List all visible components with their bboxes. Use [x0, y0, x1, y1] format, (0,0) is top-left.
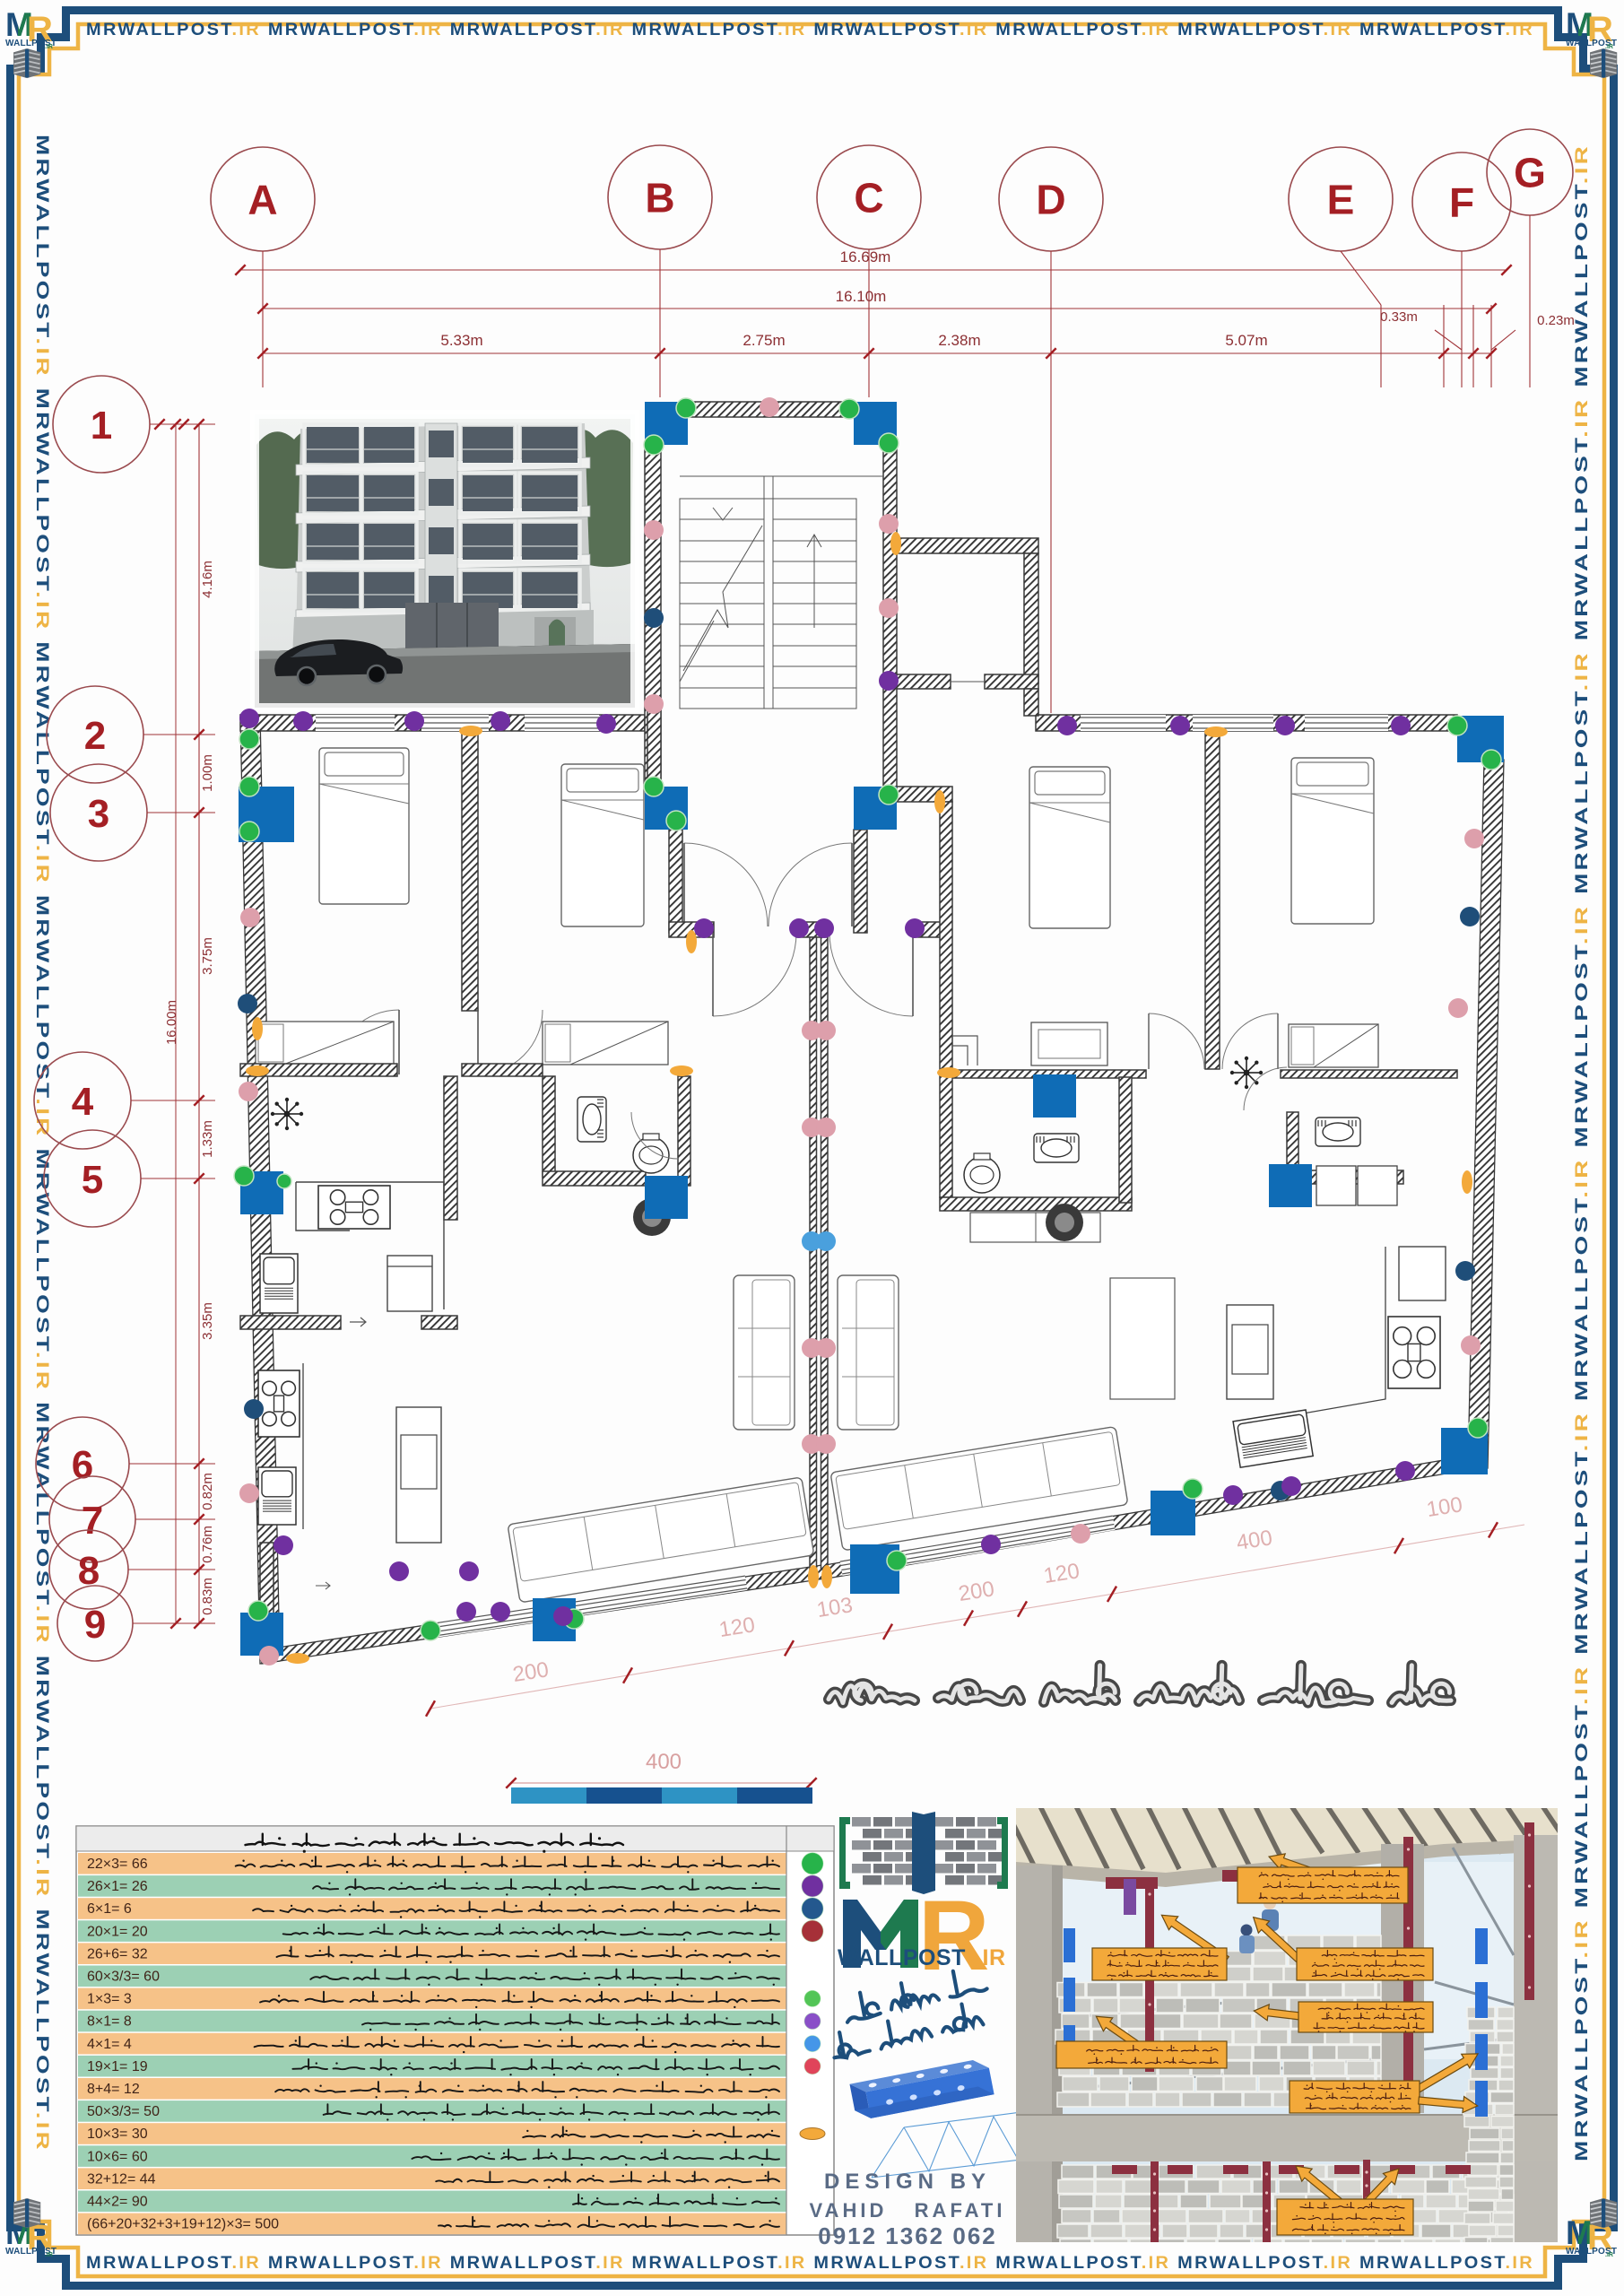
- svg-text:C: C: [854, 175, 883, 222]
- svg-text:26+6= 32: 26+6= 32: [87, 1946, 148, 1961]
- svg-text:5.33m: 5.33m: [440, 332, 482, 349]
- svg-text:1: 1: [91, 404, 112, 448]
- svg-text:3: 3: [88, 792, 109, 836]
- svg-text:.IR: .IR: [1605, 2252, 1613, 2258]
- svg-text:16.00m: 16.00m: [164, 1000, 179, 1045]
- svg-text:G: G: [1514, 150, 1546, 196]
- svg-text:4×1= 4: 4×1= 4: [87, 2037, 132, 2052]
- svg-text:4.16m: 4.16m: [200, 561, 215, 598]
- svg-text:2: 2: [84, 714, 106, 758]
- svg-text:0.82m: 0.82m: [200, 1473, 215, 1510]
- svg-text:50×3/3= 50: 50×3/3= 50: [87, 2104, 160, 2119]
- svg-text:5: 5: [82, 1158, 103, 1202]
- svg-text:10×3= 30: 10×3= 30: [87, 2126, 148, 2142]
- svg-text:60×3/3= 60: 60×3/3= 60: [87, 1970, 160, 1985]
- svg-text:16.69m: 16.69m: [840, 248, 891, 265]
- svg-text:1×3= 3: 1×3= 3: [87, 1992, 132, 2007]
- svg-text:.IR: .IR: [45, 44, 53, 50]
- svg-text:8+4= 12: 8+4= 12: [87, 2082, 140, 2097]
- svg-text:3.75m: 3.75m: [200, 937, 215, 975]
- svg-text:E: E: [1327, 177, 1355, 223]
- svg-text:4: 4: [72, 1080, 94, 1124]
- svg-text:5.07m: 5.07m: [1225, 332, 1267, 349]
- svg-text:.IR: .IR: [45, 2252, 53, 2258]
- svg-text:2.38m: 2.38m: [938, 332, 980, 349]
- svg-text:44×2= 90: 44×2= 90: [87, 2195, 148, 2210]
- svg-text:32+12= 44: 32+12= 44: [87, 2171, 156, 2187]
- svg-text:MRWALLPOST.IR MRWALLPOST.IR MR: MRWALLPOST.IR MRWALLPOST.IR MRWALLPOST.I…: [86, 21, 1534, 39]
- svg-text:3.35m: 3.35m: [200, 1302, 215, 1340]
- svg-text:MRWALLPOST.IR MRWALLPOST.IR MR: MRWALLPOST.IR MRWALLPOST.IR MRWALLPOST.I…: [1573, 143, 1592, 2161]
- svg-text:D: D: [1036, 177, 1065, 223]
- svg-text:400: 400: [646, 1750, 682, 1774]
- svg-text:A: A: [248, 177, 277, 223]
- svg-text:(66+20+32+3+19+12)×3= 500: (66+20+32+3+19+12)×3= 500: [87, 2217, 279, 2232]
- svg-text:0.33m: 0.33m: [1380, 309, 1418, 325]
- svg-text:0912 1362 062: 0912 1362 062: [818, 2222, 997, 2249]
- svg-text:19×1= 19: 19×1= 19: [87, 2059, 148, 2074]
- svg-text:DESIGN BY: DESIGN BY: [824, 2170, 991, 2194]
- svg-text:0.23m: 0.23m: [1537, 313, 1575, 328]
- svg-text:16.10m: 16.10m: [836, 288, 887, 305]
- svg-text:20×1= 20: 20×1= 20: [87, 1924, 148, 1939]
- svg-text:6×1= 6: 6×1= 6: [87, 1901, 132, 1917]
- svg-text:2.75m: 2.75m: [743, 332, 785, 349]
- svg-text:1.00m: 1.00m: [200, 754, 215, 792]
- svg-text:0.76m: 0.76m: [200, 1526, 215, 1563]
- svg-text:MRWALLPOST.IR MRWALLPOST.IR MR: MRWALLPOST.IR MRWALLPOST.IR MRWALLPOST.I…: [86, 2254, 1534, 2273]
- svg-text:10×6= 60: 10×6= 60: [87, 2149, 148, 2164]
- svg-text:B: B: [645, 175, 674, 222]
- svg-text:WALLPOST.IR: WALLPOST.IR: [838, 1945, 1006, 1970]
- svg-text:26×1= 26: 26×1= 26: [87, 1879, 148, 1894]
- svg-text:1.33m: 1.33m: [200, 1120, 215, 1158]
- svg-text:0.83m: 0.83m: [200, 1578, 215, 1615]
- svg-text:VAHID RAFATI: VAHID RAFATI: [810, 2199, 1006, 2222]
- svg-text:MRWALLPOST.IR MRWALLPOST.IR MR: MRWALLPOST.IR MRWALLPOST.IR MRWALLPOST.I…: [32, 135, 51, 2152]
- svg-text:9: 9: [84, 1603, 106, 1647]
- svg-text:8×1= 8: 8×1= 8: [87, 2014, 132, 2030]
- svg-text:22×3= 66: 22×3= 66: [87, 1857, 148, 1872]
- svg-text:F: F: [1449, 179, 1474, 226]
